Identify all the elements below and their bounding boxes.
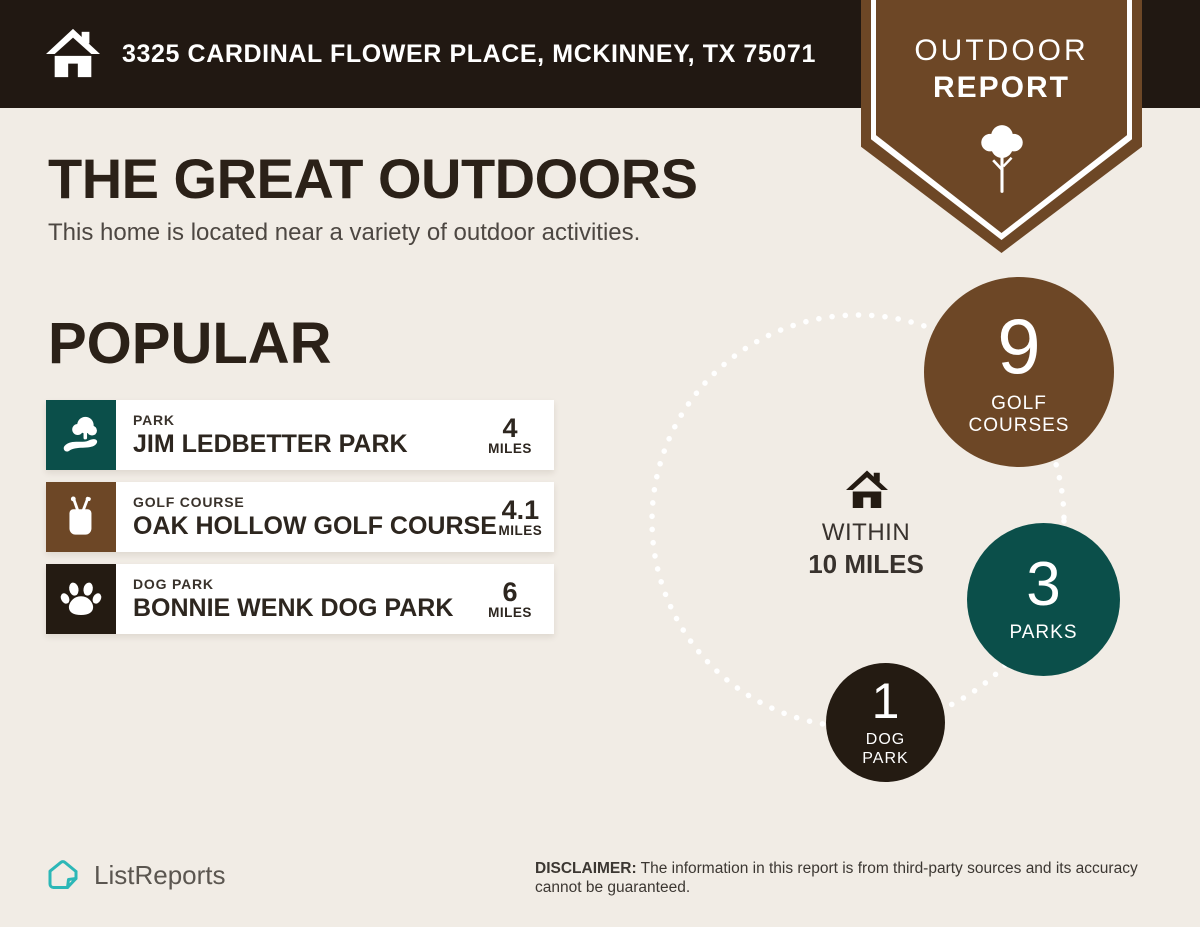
park-icon-box	[46, 400, 116, 470]
item-distance: 4 MILES	[476, 400, 554, 470]
item-distance: 4.1 MILES	[497, 482, 554, 552]
parks-count: 3	[1026, 554, 1060, 616]
tree-icon	[978, 118, 1026, 200]
golf-courses-bubble: 9 GOLF COURSES	[924, 277, 1114, 467]
parks-label: PARKS	[1009, 622, 1077, 644]
badge-title: OUTDOOR REPORT	[861, 32, 1142, 106]
listreports-brand: ListReports	[46, 858, 226, 892]
home-icon	[46, 28, 100, 80]
disclaimer: DISCLAIMER: The information in this repo…	[535, 860, 1175, 898]
golf-courses-count: 9	[997, 307, 1040, 385]
property-address: 3325 CARDINAL FLOWER PLACE, MCKINNEY, TX…	[122, 40, 816, 69]
home-icon	[846, 470, 888, 510]
item-distance: 6 MILES	[476, 564, 554, 634]
item-name: OAK HOLLOW GOLF COURSE	[133, 512, 497, 541]
popular-item-golf: GOLF COURSE OAK HOLLOW GOLF COURSE 4.1 M…	[46, 482, 554, 552]
radius-center-label: WITHIN 10 MILES	[766, 519, 966, 580]
golf-courses-label: GOLF COURSES	[959, 393, 1079, 438]
dog-park-count: 1	[872, 676, 900, 726]
item-category: GOLF COURSE	[133, 494, 497, 510]
item-name: JIM LEDBETTER PARK	[133, 430, 476, 459]
dog-park-label: DOG PARK	[853, 731, 919, 769]
golf-item-text: GOLF COURSE OAK HOLLOW GOLF COURSE	[116, 482, 497, 552]
listreports-wordmark: ListReports	[94, 860, 226, 891]
listreports-logo-icon	[46, 858, 80, 892]
popular-item-dogpark: DOG PARK BONNIE WENK DOG PARK 6 MILES	[46, 564, 554, 634]
page-title: THE GREAT OUTDOORS	[48, 146, 698, 211]
page-subtitle: This home is located near a variety of o…	[48, 219, 640, 247]
disclaimer-label: DISCLAIMER:	[535, 860, 637, 877]
item-category: DOG PARK	[133, 576, 476, 592]
dog-park-bubble: 1 DOG PARK	[826, 663, 945, 782]
item-category: PARK	[133, 412, 476, 428]
dogpark-item-text: DOG PARK BONNIE WENK DOG PARK	[116, 564, 476, 634]
park-icon	[59, 413, 103, 457]
outdoor-report-badge: OUTDOOR REPORT	[861, 0, 1142, 253]
item-name: BONNIE WENK DOG PARK	[133, 594, 476, 623]
paw-icon	[59, 577, 103, 621]
park-item-text: PARK JIM LEDBETTER PARK	[116, 400, 476, 470]
golf-bag-icon	[59, 495, 103, 539]
popular-item-park: PARK JIM LEDBETTER PARK 4 MILES	[46, 400, 554, 470]
outdoor-report-page: 3325 CARDINAL FLOWER PLACE, MCKINNEY, TX…	[0, 0, 1200, 927]
golf-icon-box	[46, 482, 116, 552]
dogpark-icon-box	[46, 564, 116, 634]
popular-heading: POPULAR	[48, 310, 332, 377]
parks-bubble: 3 PARKS	[967, 523, 1120, 676]
